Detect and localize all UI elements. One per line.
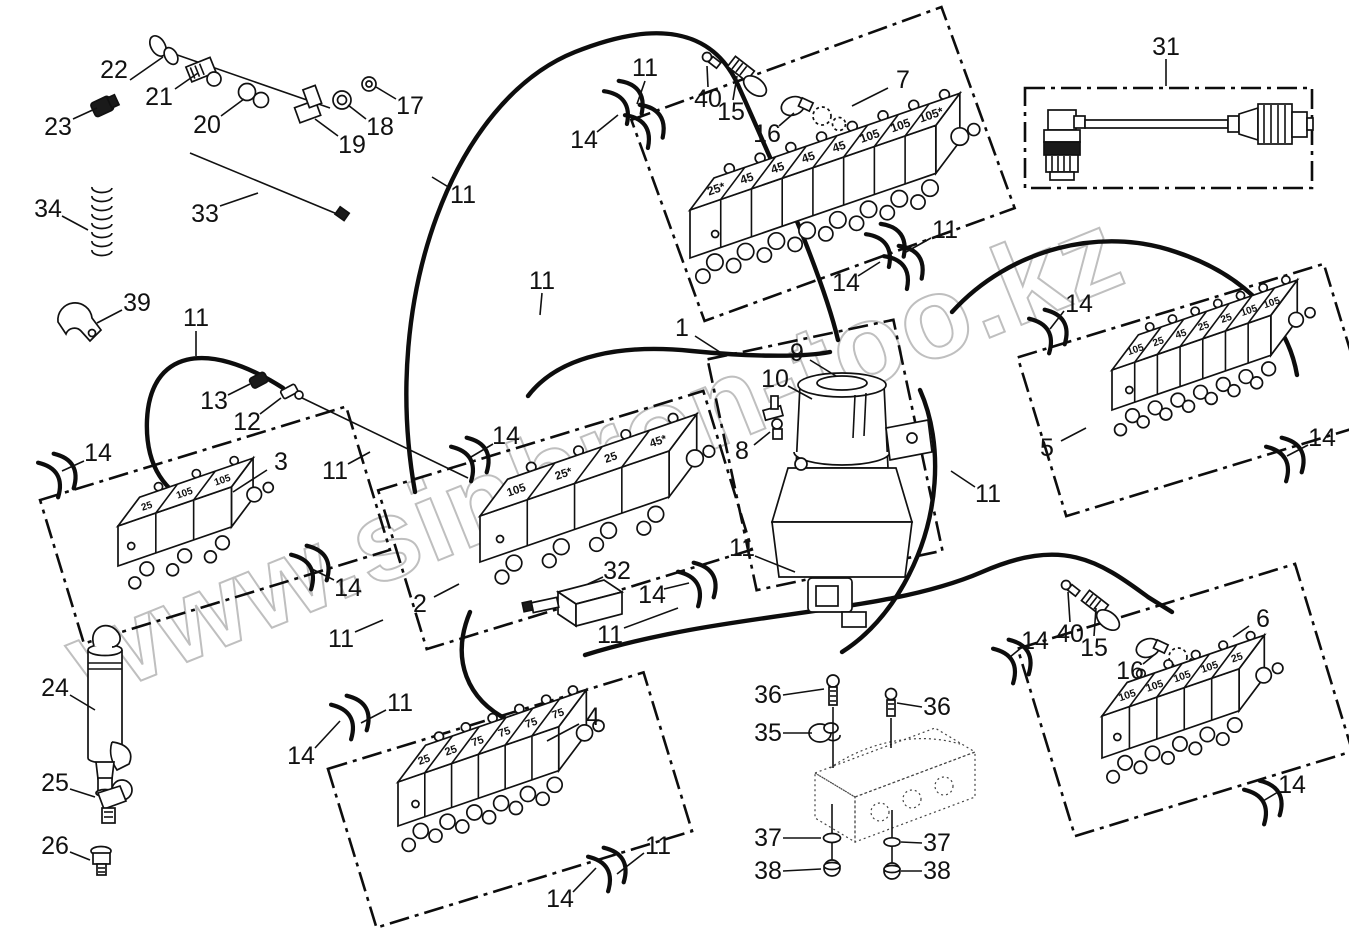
callout-38: 38: [754, 857, 782, 885]
callout-leader: [783, 689, 824, 695]
callout-37: 37: [754, 824, 782, 852]
callout-leader: [376, 87, 396, 99]
callout-20: 20: [193, 111, 221, 139]
attachment-32: [522, 580, 622, 626]
callout-11: 11: [597, 621, 623, 649]
callout-11: 11: [645, 832, 671, 860]
callout-22: 22: [100, 56, 128, 84]
callout-25: 25: [41, 769, 69, 797]
callout-11: 11: [328, 625, 354, 653]
callout-16: 16: [753, 120, 781, 148]
callout-leader: [707, 66, 708, 87]
callout-leader: [221, 99, 244, 116]
callout-33: 33: [191, 200, 219, 228]
callout-17: 17: [396, 92, 424, 120]
callout-1: 1: [675, 314, 689, 342]
boundary-box-4: [328, 672, 692, 927]
callout-10: 10: [761, 365, 789, 393]
callout-leader: [73, 108, 97, 119]
callout-leader: [901, 842, 922, 843]
callout-13: 13: [200, 387, 228, 415]
callout-leader: [348, 452, 370, 464]
callout-19: 19: [338, 131, 366, 159]
callout-14: 14: [570, 126, 598, 154]
pump-body-10: [772, 468, 912, 522]
callout-11: 11: [322, 457, 348, 485]
cartridge-handle: [93, 626, 120, 647]
callout-leader: [361, 710, 386, 723]
callout-3: 3: [274, 448, 288, 476]
callout-34: 34: [34, 195, 62, 223]
callout-35: 35: [754, 719, 782, 747]
cable-assembly-31: [1044, 104, 1313, 180]
fitting-26: [91, 847, 111, 876]
callout-leader: [355, 620, 383, 632]
callout-18: 18: [366, 113, 394, 141]
plug-23: [90, 93, 120, 118]
callout-leader: [62, 216, 88, 230]
callout-leader: [951, 471, 975, 487]
callout-leader: [220, 193, 258, 206]
callout-14: 14: [638, 581, 666, 609]
callout-14: 14: [1021, 627, 1049, 655]
callout-leader: [897, 703, 922, 707]
callout-leader: [70, 852, 90, 860]
nut-38a: [824, 860, 840, 876]
callout-leader: [573, 868, 596, 892]
callout-leader: [228, 384, 250, 395]
callout-14: 14: [546, 885, 574, 913]
callout-8: 8: [735, 437, 749, 465]
clamp-35: [809, 723, 840, 742]
parts-diagram: www.sinhron-too.kz: [0, 0, 1349, 933]
callout-11: 11: [632, 54, 658, 82]
callout-12: 12: [233, 408, 261, 436]
callout-39: 39: [123, 289, 151, 317]
callout-leader: [260, 398, 281, 414]
callout-leader: [624, 608, 678, 628]
callout-14: 14: [287, 742, 315, 770]
callout-2: 2: [413, 590, 427, 618]
callout-14: 14: [492, 422, 520, 450]
spring-34: [92, 187, 112, 256]
nut-38b: [884, 863, 900, 879]
callout-15: 15: [1080, 634, 1108, 662]
callout-leader: [783, 869, 821, 871]
fitting-13: [249, 371, 269, 389]
callout-14: 14: [84, 439, 112, 467]
parts-diagram-page: www.sinhron-too.kz: [0, 0, 1349, 933]
callout-11: 11: [975, 480, 1001, 508]
callout-37: 37: [923, 829, 951, 857]
callout-4: 4: [586, 703, 600, 731]
callout-leader: [597, 115, 618, 132]
screw-36b: [886, 689, 897, 700]
valve-block-5: 10525452525105105: [1112, 276, 1315, 436]
callout-7: 7: [896, 66, 910, 94]
callout-11: 11: [387, 689, 413, 717]
callout-14: 14: [334, 574, 362, 602]
callout-11: 11: [450, 181, 476, 209]
callout-14: 14: [1278, 771, 1306, 799]
callout-38: 38: [923, 857, 951, 885]
callout-16: 16: [1116, 657, 1144, 685]
callout-leader: [315, 119, 338, 136]
callout-11: 11: [729, 534, 755, 562]
callout-leader: [1068, 592, 1070, 622]
callout-leader: [97, 310, 122, 323]
elbow-19: [290, 85, 326, 122]
callout-leader: [540, 293, 542, 315]
screw-36a: [827, 675, 839, 687]
callout-14: 14: [1065, 290, 1093, 318]
callout-11: 11: [529, 267, 555, 295]
callout-23: 23: [44, 113, 72, 141]
callout-5: 5: [1040, 434, 1054, 462]
cable-31: [1085, 120, 1228, 128]
callout-leader: [852, 88, 888, 106]
callout-14: 14: [832, 269, 860, 297]
washer-37a: [824, 834, 841, 843]
callout-leader: [1061, 428, 1086, 441]
callout-24: 24: [41, 674, 69, 702]
callout-leader: [70, 789, 95, 797]
clamp-39: [58, 303, 101, 341]
callout-leader: [432, 177, 450, 188]
callout-36: 36: [754, 681, 782, 709]
callout-32: 32: [603, 557, 631, 585]
callout-leader: [664, 583, 689, 589]
callout-15: 15: [717, 98, 745, 126]
callout-11: 11: [932, 216, 958, 244]
callout-6: 6: [1256, 605, 1270, 633]
callout-leader: [130, 57, 163, 80]
callout-leader: [1263, 792, 1278, 801]
callout-21: 21: [145, 83, 173, 111]
callout-9: 9: [790, 339, 804, 367]
valve-block-6: 10510510510525: [1102, 632, 1283, 783]
callout-31: 31: [1152, 33, 1180, 61]
callout-26: 26: [41, 832, 69, 860]
callout-leader: [1094, 608, 1096, 636]
valve-block-4: 252575757575: [398, 686, 604, 851]
callout-11: 11: [183, 304, 209, 332]
callout-leader: [348, 105, 366, 119]
callout-14: 14: [1308, 424, 1336, 452]
washer-37b: [884, 838, 900, 846]
callout-leader: [315, 721, 340, 748]
callout-36: 36: [923, 693, 951, 721]
